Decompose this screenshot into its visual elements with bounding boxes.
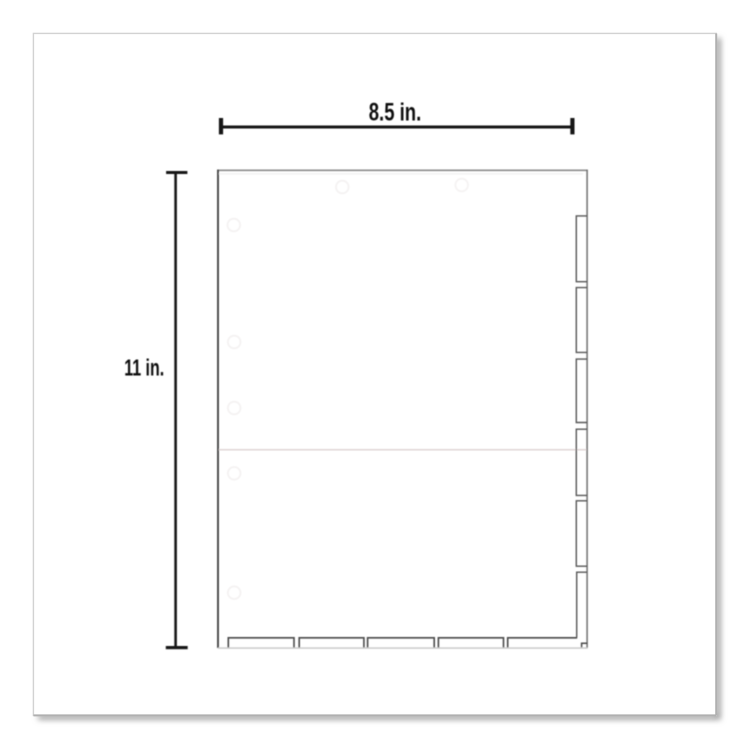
svg-text:11 in.: 11 in. <box>124 354 164 380</box>
svg-text:8.5 in.: 8.5 in. <box>369 98 422 126</box>
